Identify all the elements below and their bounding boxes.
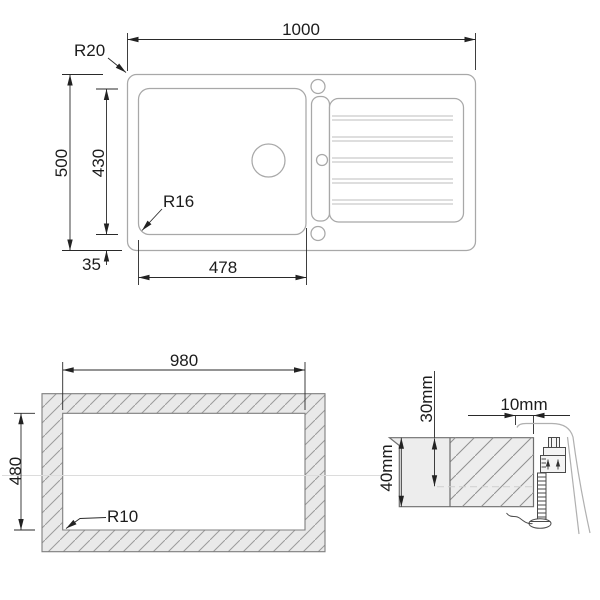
outer-radius-label: R20	[74, 41, 105, 60]
ext-lines-overhang	[516, 416, 534, 435]
top-view	[128, 75, 476, 251]
outer-radius-leader	[108, 58, 126, 73]
overhang-label: 10mm	[500, 395, 547, 414]
tap-hole-bottom	[311, 227, 325, 241]
section-view: 40mm 30mm 10mm	[377, 371, 590, 534]
clip-screw-shaft	[538, 473, 547, 519]
overall-depth-label: 500	[52, 149, 71, 177]
bowl-radius-label: R16	[163, 192, 194, 211]
sink-wall-inner	[568, 437, 580, 534]
cutout-radius-label: R10	[107, 507, 138, 526]
cutout-radius-leader	[66, 518, 106, 529]
sink-technical-drawing: 1000 500 430 35 478 R20 R16 980 480	[0, 0, 600, 600]
clip-plate	[544, 448, 566, 456]
edge-offset-label: 35	[82, 255, 101, 274]
cutout-width-label: 980	[170, 351, 198, 370]
spring-washer-curve	[507, 513, 533, 524]
drain-hole	[252, 144, 285, 177]
worktop-thickness-label: 40mm	[377, 444, 396, 491]
tap-hole-middle	[317, 155, 328, 166]
clip-stud	[549, 438, 560, 448]
fixing-depth-label: 30mm	[417, 375, 436, 422]
clip-body	[541, 456, 566, 473]
overall-width-label: 1000	[282, 20, 320, 39]
worktop-section-hatch	[450, 438, 534, 507]
bowl-width-label: 478	[209, 258, 237, 277]
cutout-view: 980 480 R10	[2, 351, 392, 552]
bowl-depth-label: 430	[89, 149, 108, 177]
tap-hole-top	[311, 80, 325, 94]
drainboard	[330, 99, 464, 223]
cutout-depth-label: 480	[6, 457, 25, 485]
worktop-band-hatch	[42, 394, 325, 552]
worktop-band-fill	[42, 394, 325, 552]
